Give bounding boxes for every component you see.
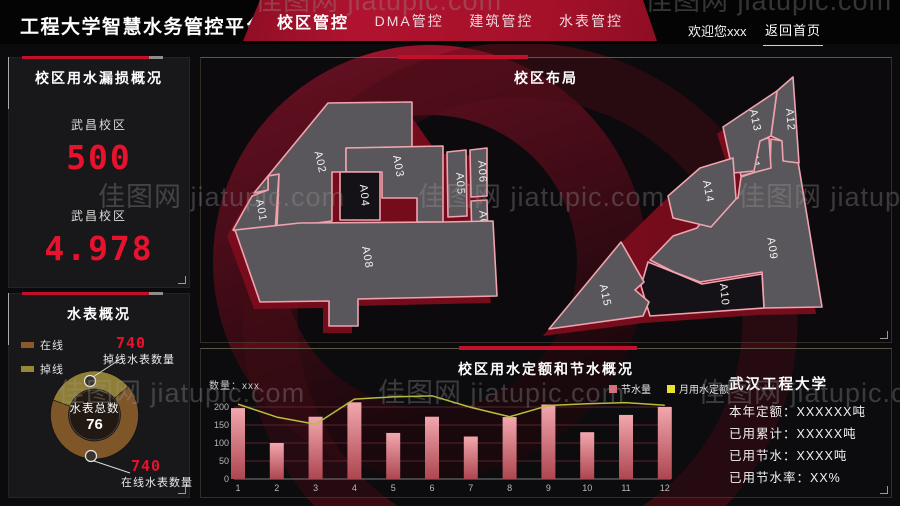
bar-month-8[interactable] [503,417,517,479]
panel-accent-line-left [8,57,9,109]
x-tick-label: 6 [429,483,434,493]
y-tick-label: 100 [214,438,229,448]
quota-line-series [238,396,665,424]
map-region-a04[interactable] [340,172,380,220]
x-tick-label: 3 [313,483,318,493]
callout-marker [85,376,96,387]
stat-value: 500 [9,138,189,177]
panel-quota: 校区用水定额和节水概况 数量：xxx 节水量月用水定额 050100150200… [200,348,892,498]
app-title: 工程大学智慧水务管控平台 [20,12,266,39]
panel-accent-line [22,56,149,59]
x-tick-label: 2 [274,483,279,493]
callout-marker [86,451,97,462]
info-row: 已用节水：XXXX吨 [729,445,889,467]
bar-month-12[interactable] [658,407,672,479]
bar-month-10[interactable] [580,432,594,479]
offline-count-label: 掉线水表数量 [99,351,179,367]
x-tick-label: 5 [391,483,396,493]
stat-label: 武昌校区 [9,207,189,224]
map-region-a06[interactable] [470,148,487,197]
offline-count: 740 [101,334,161,352]
panel-accent-line [398,55,528,59]
info-row: 本年定额：XXXXXX吨 [729,401,889,423]
bar-month-4[interactable] [347,402,361,479]
bar-month-2[interactable] [270,443,284,479]
x-tick-label: 11 [621,483,630,493]
y-tick-label: 0 [224,474,229,484]
y-tick-label: 50 [219,456,229,466]
nav-tab-3[interactable]: 建筑管控 [469,11,533,31]
dashboard: 工程大学智慧水务管控平台 校区管控DMA管控建筑管控水表管控 欢迎您xxx 返回… [0,0,900,506]
nav-tab-2[interactable]: DMA管控 [375,11,444,31]
x-tick-label: 4 [352,483,357,493]
bar-month-9[interactable] [541,404,555,479]
bar-month-5[interactable] [386,433,400,479]
legend-series-label: 月用水定额 [679,381,729,396]
info-row: 已用节水率：XX% [729,467,889,489]
panel-accent-line [459,346,637,350]
bar-month-6[interactable] [425,417,439,479]
bar-month-1[interactable] [231,408,245,479]
stat-value: 4.978 [9,229,189,268]
bar-month-3[interactable] [309,417,323,479]
nav-band: 校区管控DMA管控建筑管控水表管控 [243,0,657,41]
panel-meters: 水表概况 在线 掉线 水表总数76 740 掉线水表数量 740 在线水表数量 [8,293,190,498]
online-count-label: 在线水表数量 [112,474,202,490]
bar-month-11[interactable] [619,415,633,479]
nav-tab-4[interactable]: 水表管控 [559,11,623,31]
nav-tab-1[interactable]: 校区管控 [277,9,349,33]
online-count: 740 [116,457,176,475]
map-region-a05[interactable] [447,150,467,217]
donut-total-value: 76 [86,416,103,433]
x-tick-label: 9 [546,483,551,493]
back-home-link[interactable]: 返回首页 [763,20,823,46]
donut-center-label: 水表总数 [70,401,120,415]
quota-bar-chart: 050100150200123456789101112 [206,373,681,497]
bar-month-7[interactable] [464,437,478,479]
school-name: 武汉工程大学 [729,373,889,394]
y-tick-label: 200 [214,402,229,412]
usage-info-block: 武汉工程大学 本年定额：XXXXXX吨 已用累计：XXXXX吨 已用节水：XXX… [729,373,889,489]
x-tick-label: 10 [582,483,592,493]
panel-leakage-title: 校区用水漏损概况 [9,58,189,88]
welcome-text: 欢迎您xxx [688,21,747,40]
x-tick-label: 12 [660,483,670,493]
x-tick-label: 8 [507,483,512,493]
y-tick-label: 150 [214,420,229,430]
info-row: 已用累计：XXXXX吨 [729,423,889,445]
x-tick-label: 1 [235,483,240,493]
stat-label: 武昌校区 [9,116,189,133]
x-tick-label: 7 [468,483,473,493]
panel-leakage: 校区用水漏损概况 武昌校区 500 武昌校区 4.978 [8,57,190,288]
